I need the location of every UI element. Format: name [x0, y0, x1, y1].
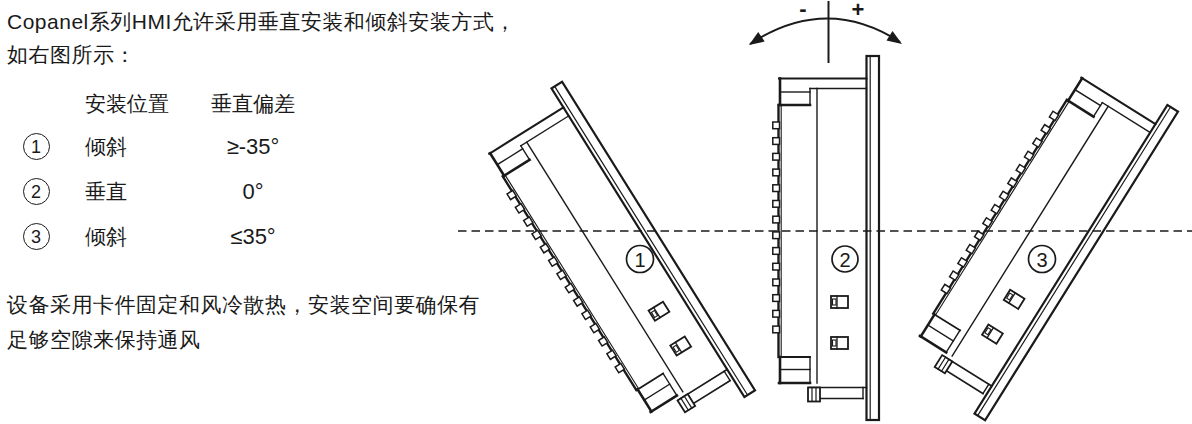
tilt-range-scale: - + [749, 0, 902, 63]
arrow-right-icon [887, 31, 903, 44]
panel-label-2: 2 [832, 246, 858, 272]
hmi-panel-side-view-vertical [773, 56, 879, 420]
panel-label-3: 3 [1029, 246, 1056, 273]
hmi-panel-side-view-tilted-negative [472, 82, 755, 424]
plus-label: + [852, 0, 865, 22]
panel-label-1: 1 [627, 246, 654, 273]
svg-text:3: 3 [1036, 249, 1047, 271]
manual-page: Copanel系列HMI允许采用垂直安装和倾斜安装方式， 如右图所示： 安装位置… [0, 0, 1192, 424]
tilt-arc [750, 18, 900, 44]
hmi-panel-side-view-tilted-positive [895, 55, 1178, 420]
installation-diagram: - + 1 2 3 [0, 0, 1192, 424]
arrow-left-icon [749, 32, 765, 45]
minus-label: - [799, 0, 806, 21]
svg-text:2: 2 [839, 249, 850, 271]
svg-text:1: 1 [634, 249, 645, 271]
